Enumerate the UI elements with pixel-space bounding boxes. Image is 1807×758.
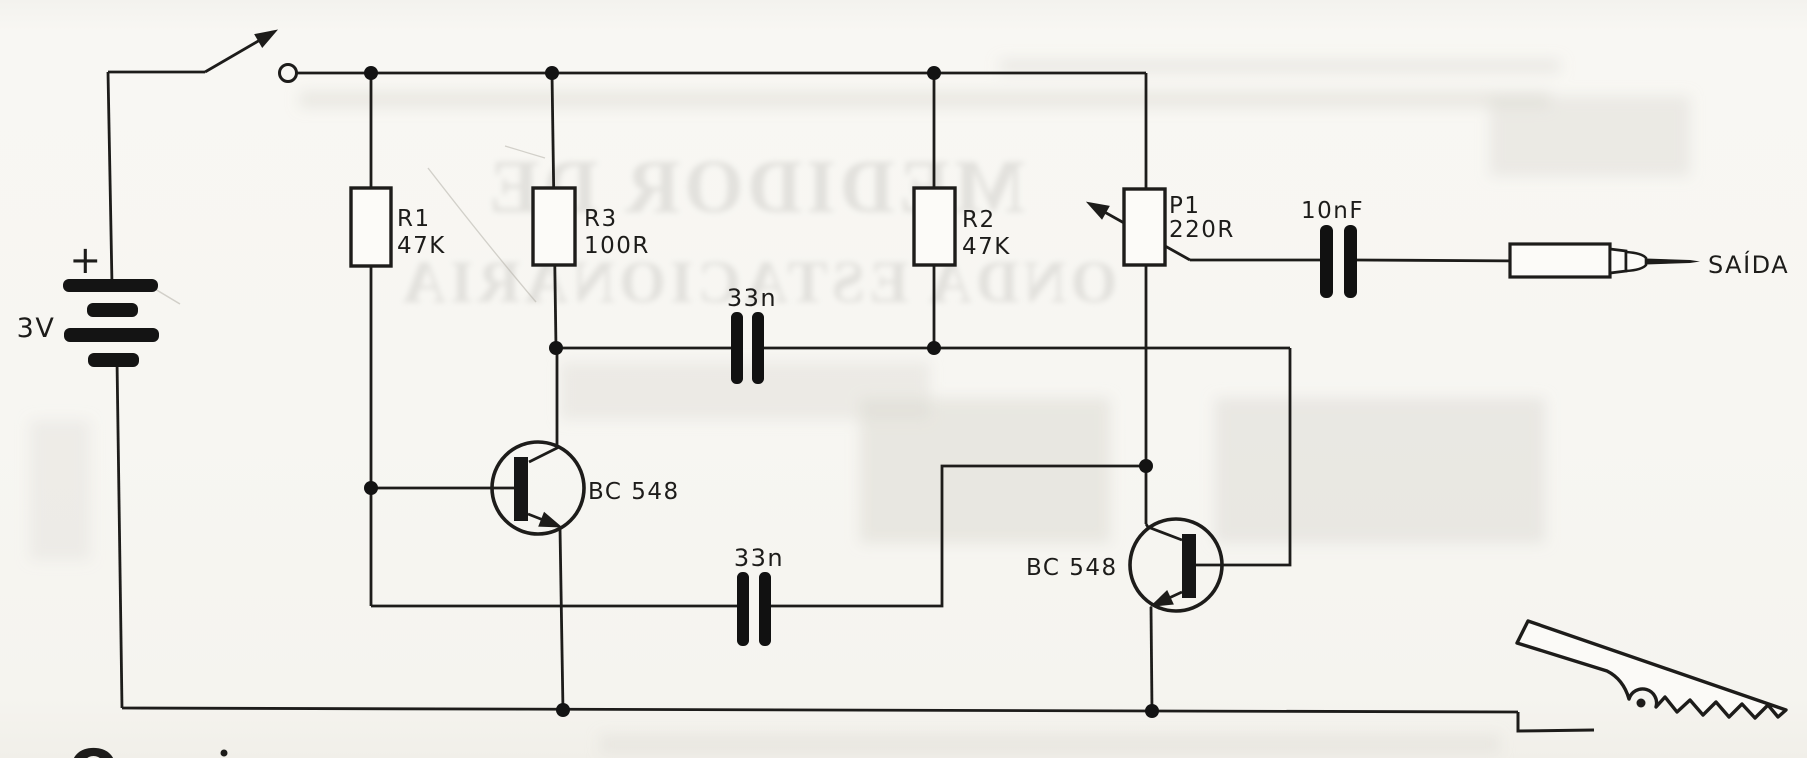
- junction-dot: [545, 66, 559, 80]
- resistor-r1-ref-label: R1: [397, 206, 431, 232]
- probe-needle-arrow: [1646, 259, 1700, 265]
- potentiometer-p1-body: [1124, 189, 1165, 265]
- capacitor-c2-33n: [737, 572, 771, 646]
- battery-plate-short: [88, 353, 139, 367]
- transistor-q1-base-bar: [514, 457, 528, 521]
- caption-fragment: O: [68, 737, 121, 758]
- battery-plus-label: +: [69, 238, 102, 282]
- output-saida-label: SAÍDA: [1708, 250, 1789, 279]
- transistor-q2-part-label: BC 548: [1026, 555, 1118, 581]
- clip-lower-jaw: [1518, 712, 1594, 731]
- bleed-smudge: [1490, 96, 1690, 176]
- resistor-r2-body: [914, 188, 955, 265]
- schematic-canvas: MEDIDOR DE ONDA ESTACIONÁRIA: [0, 0, 1807, 758]
- bleed-smudge: [300, 92, 1550, 107]
- wire-ground-rail: [122, 708, 1518, 712]
- wire-segment: [108, 72, 112, 285]
- bleed-smudge: [1000, 60, 1560, 72]
- caption-i-dot: [221, 750, 228, 757]
- resistor-r2-value-label: 47K: [962, 234, 1011, 260]
- wire-q1-emitter: [560, 528, 563, 711]
- output-probe: [1510, 244, 1700, 277]
- junction-dot: [927, 341, 941, 355]
- wire-q2-emitter-arrow: [1156, 592, 1182, 604]
- bleed-smudge: [560, 362, 930, 420]
- probe-collar: [1610, 249, 1626, 273]
- resistor-r2-ref-label: R2: [962, 207, 996, 233]
- wire-q1-emitter-arrow: [528, 514, 556, 525]
- potentiometer-p1-ref-label: P1: [1169, 193, 1201, 219]
- junction-dot: [556, 703, 570, 717]
- resistor-r3-value-label: 100R: [584, 233, 650, 259]
- battery-symbol: [63, 279, 159, 367]
- capacitor-c2-value-label: 33n: [734, 544, 784, 572]
- capacitor-plate: [731, 312, 743, 384]
- alligator-clip: [1517, 621, 1786, 731]
- switch-blade: [205, 33, 272, 72]
- junction-dot: [549, 341, 563, 355]
- battery-plate-short: [87, 303, 138, 317]
- resistor-r1-value-label: 47K: [397, 233, 446, 259]
- wire-output2: [1357, 260, 1530, 261]
- capacitor-plate: [759, 572, 771, 646]
- capacitor-c1-value-label: 33n: [727, 284, 777, 312]
- battery-voltage-label: 3V: [17, 313, 56, 344]
- resistor-r3-ref-label: R3: [584, 206, 618, 232]
- capacitor-c3-10nf: [1320, 225, 1357, 298]
- clip-upper-jaw: [1517, 621, 1786, 718]
- junction-dot: [364, 481, 378, 495]
- transistor-q2-base-bar: [1182, 534, 1196, 598]
- scanned-schematic-page: MEDIDOR DE ONDA ESTACIONÁRIA: [0, 0, 1807, 758]
- battery-plate-long: [64, 328, 159, 342]
- capacitor-plate: [1344, 225, 1357, 298]
- junction-dot: [927, 66, 941, 80]
- potentiometer-p1-value-label: 220R: [1169, 217, 1235, 243]
- probe-cone: [1626, 252, 1646, 271]
- transistor-q1-part-label: BC 548: [588, 479, 680, 505]
- clip-pivot-dot: [1637, 699, 1646, 708]
- capacitor-plate: [1320, 225, 1333, 298]
- wire-segment: [117, 360, 122, 708]
- bleed-smudge: [30, 420, 90, 560]
- resistor-r1-body: [351, 188, 391, 266]
- wire-q2-emitter: [1151, 607, 1152, 711]
- probe-body: [1510, 244, 1610, 277]
- resistor-r3-body: [533, 188, 575, 265]
- junction-dot: [364, 66, 378, 80]
- bleed-smudge: [600, 735, 1500, 753]
- bleed-smudge: [1215, 398, 1545, 543]
- capacitor-plate: [752, 312, 764, 384]
- junction-dot: [1139, 459, 1153, 473]
- junction-dot: [1145, 704, 1159, 718]
- wire-battery-column: [108, 72, 205, 708]
- switch-contact-circle: [280, 65, 297, 82]
- capacitor-c3-value-label: 10nF: [1301, 198, 1364, 224]
- capacitor-plate: [737, 572, 749, 646]
